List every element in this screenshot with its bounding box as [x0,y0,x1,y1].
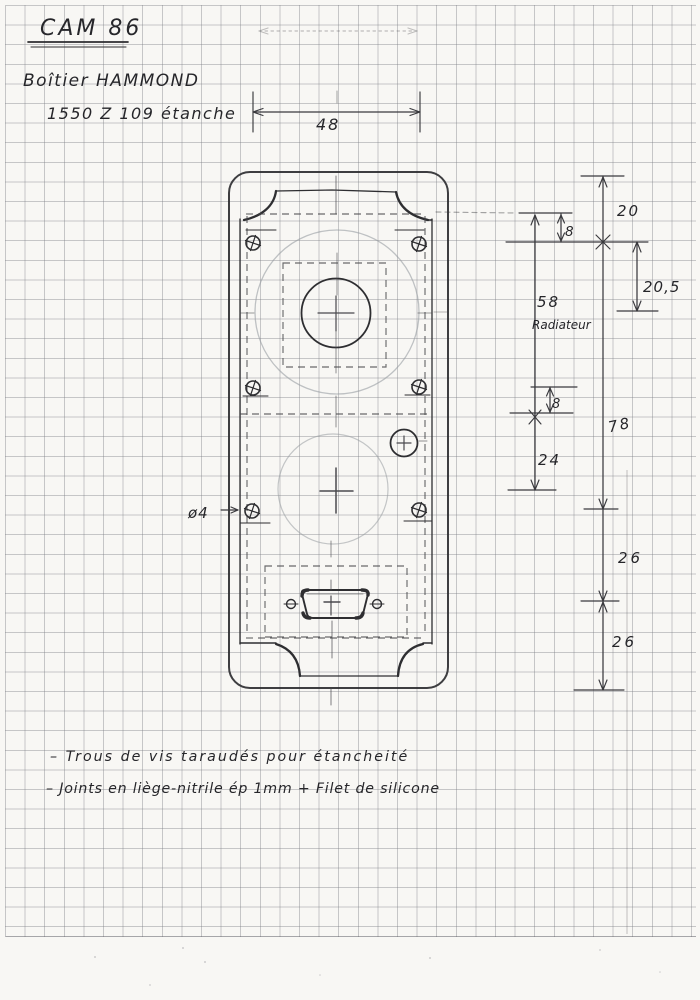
part-name: Boîtier HAMMOND [23,71,199,91]
notes-block: – Trous de vis taraudés pour étancheité … [46,749,440,797]
screw-lower-left [240,504,270,524]
dsub-connector-area [265,541,407,705]
note-line-1: – Trous de vis taraudés pour étancheité [50,749,409,765]
drawing-title: CAM 86 [40,16,142,41]
center-cross [318,296,354,331]
dim-label-24: 24 [538,451,561,469]
screw-top-left [246,230,277,251]
dsub-jack-screws [284,600,384,609]
radiator-top-area [240,176,447,394]
small-hole-cross [397,436,427,450]
dimension-arrowheads [529,177,641,690]
dim-label-20: 20 [617,202,640,220]
dim-label-8-top: 8 [565,224,574,240]
corner-post-bottom-right [398,644,423,676]
note-line-2: – Joints en liège-nitrile ép 1mm + Filet… [46,781,440,797]
middle-area [240,396,432,544]
screw-mid-right [405,380,430,396]
corner-post-top-right [396,192,428,220]
ghost-dimension-line [259,28,417,34]
corner-post-top-left [244,191,276,220]
part-reference: 1550 Z 109 étanche [47,104,236,123]
screw-lower-right [404,503,432,522]
radiator-circle-bottom [278,434,388,544]
dim-label-26-lower: 26 [612,633,637,651]
dim-label-78: 78 [606,414,632,436]
graph-paper-page: CAM 86 Boîtier HAMMOND 1550 Z 109 étanch… [0,0,700,1000]
lower-center-cross [320,468,353,513]
dim-label-8-mid: 8 [552,397,560,412]
dimension-width-48: 48 [253,91,420,134]
screw-top-right [395,230,427,252]
hole-diameter-label: ø4 [187,504,209,522]
dim-label-26-upper: 26 [618,549,643,567]
technical-drawing: CAM 86 Boîtier HAMMOND 1550 Z 109 étanch… [0,0,700,1000]
paper-artifacts [94,470,661,986]
dim-label-48: 48 [316,115,340,134]
dim-label-20-5: 20,5 [643,278,680,296]
hole-callout: ø4 [187,504,238,522]
dim-label-radiateur: Radiateur [532,318,592,332]
right-dimensions: 20 8 20,5 58 Radiateur 8 78 24 26 26 [436,176,680,690]
dim-label-58: 58 [537,293,560,311]
screw-mid-left [243,381,268,397]
paper-specks [94,947,661,986]
corner-post-bottom-left [276,644,300,676]
title-block: CAM 86 Boîtier HAMMOND 1550 Z 109 étanch… [23,16,236,123]
